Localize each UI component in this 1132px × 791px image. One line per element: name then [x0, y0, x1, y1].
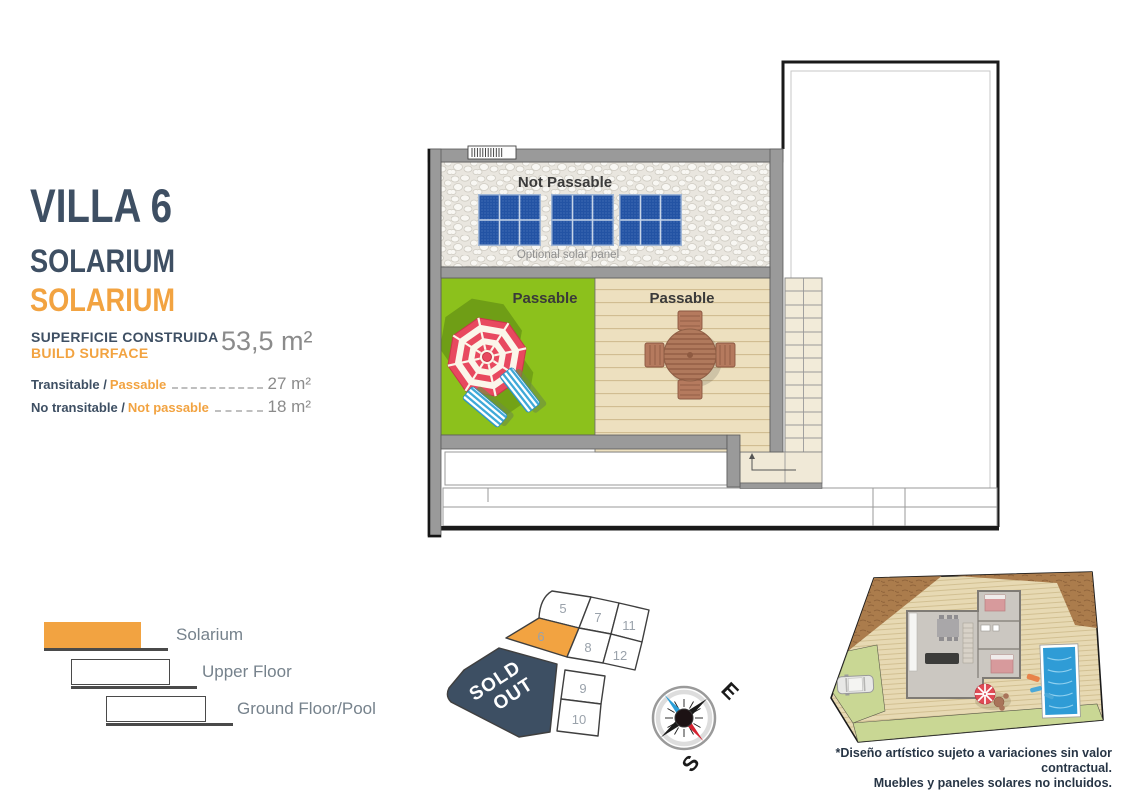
- site-plan-illustration: [825, 563, 1132, 751]
- area-label-es: No transitable /: [31, 400, 125, 415]
- build-surface-block: SUPERFICIE CONSTRUIDA BUILD SURFACE: [31, 329, 219, 361]
- area-label-en: Not passable: [128, 400, 209, 415]
- plot-number: 8: [584, 640, 591, 655]
- solar-panel-note: Optional solar panel: [517, 249, 619, 261]
- pool: [1040, 644, 1081, 718]
- solarium-floor-plan: Not Passable Optional solar panel Passab…: [425, 55, 1010, 545]
- not-passable-label: Not Passable: [518, 174, 612, 191]
- plot-number: 6: [537, 629, 544, 644]
- plan-bottom-edge: [428, 526, 999, 531]
- plot-number: 10: [572, 712, 586, 727]
- legend-swatch-upper-floor: [71, 659, 170, 685]
- area-row-not-passable: No transitable / Not passable 18 m²: [31, 397, 311, 420]
- legend-label-ground-floor: Ground Floor/Pool: [237, 699, 376, 719]
- plot-number: 9: [579, 681, 586, 696]
- legend-label-solarium: Solarium: [176, 625, 243, 645]
- legend-swatch-ground-floor: [106, 696, 206, 722]
- solar-panels: [478, 194, 682, 246]
- solar-panel-icon: [551, 194, 614, 246]
- disclaimer-line-2: Muebles y paneles solares no incluidos.: [790, 776, 1112, 791]
- surface-label-en: BUILD SURFACE: [31, 345, 219, 361]
- area-row-passable: Transitable / Passable 27 m²: [31, 374, 311, 397]
- subtitle-solarium-es: SOLARIUM: [30, 243, 175, 280]
- passable-deck-label: Passable: [649, 290, 714, 307]
- area-value: 18 m²: [268, 397, 311, 417]
- disclaimer-note: *Diseño artístico sujeto a variaciones s…: [790, 746, 1112, 791]
- plot-number: 12: [613, 648, 627, 663]
- brochure-page: { "header": { "villa_title": "VILLA 6", …: [0, 0, 1132, 785]
- legend-underline: [106, 723, 233, 726]
- roof-vent-grille: [468, 146, 516, 159]
- plot-number: 7: [594, 610, 601, 625]
- area-label-es: Transitable /: [31, 377, 107, 392]
- lower-roof-gap: [445, 452, 727, 485]
- legend-swatch-solarium: [44, 622, 141, 648]
- lower-terrace-band: [443, 488, 997, 526]
- compass-south-label: S: [678, 751, 705, 777]
- passable-grass-label: Passable: [512, 290, 577, 307]
- legend-label-upper-floor: Upper Floor: [202, 662, 292, 682]
- area-value: 27 m²: [268, 374, 311, 394]
- area-breakdown: Transitable / Passable 27 m² No transita…: [31, 374, 311, 420]
- area-label-en: Passable: [110, 377, 166, 392]
- compass-east-label: E: [717, 678, 743, 704]
- dash-leader: [172, 387, 262, 389]
- plot-number: 5: [559, 601, 566, 616]
- subtitle-solarium-en: SOLARIUM: [30, 282, 175, 319]
- car-icon: [837, 673, 874, 696]
- dash-leader: [215, 410, 263, 412]
- legend-underline: [71, 686, 197, 689]
- surface-total-value: 53,5 m²: [221, 326, 313, 357]
- page-title: VILLA 6: [30, 178, 172, 233]
- disclaimer-line-1: *Diseño artístico sujeto a variaciones s…: [790, 746, 1112, 776]
- compass-rose-icon: E S: [632, 662, 747, 777]
- solar-panel-icon: [478, 194, 541, 246]
- legend-underline: [44, 648, 168, 651]
- solar-panel-icon: [619, 194, 682, 246]
- surface-label-es: SUPERFICIE CONSTRUIDA: [31, 329, 219, 345]
- plot-number: 11: [622, 618, 636, 633]
